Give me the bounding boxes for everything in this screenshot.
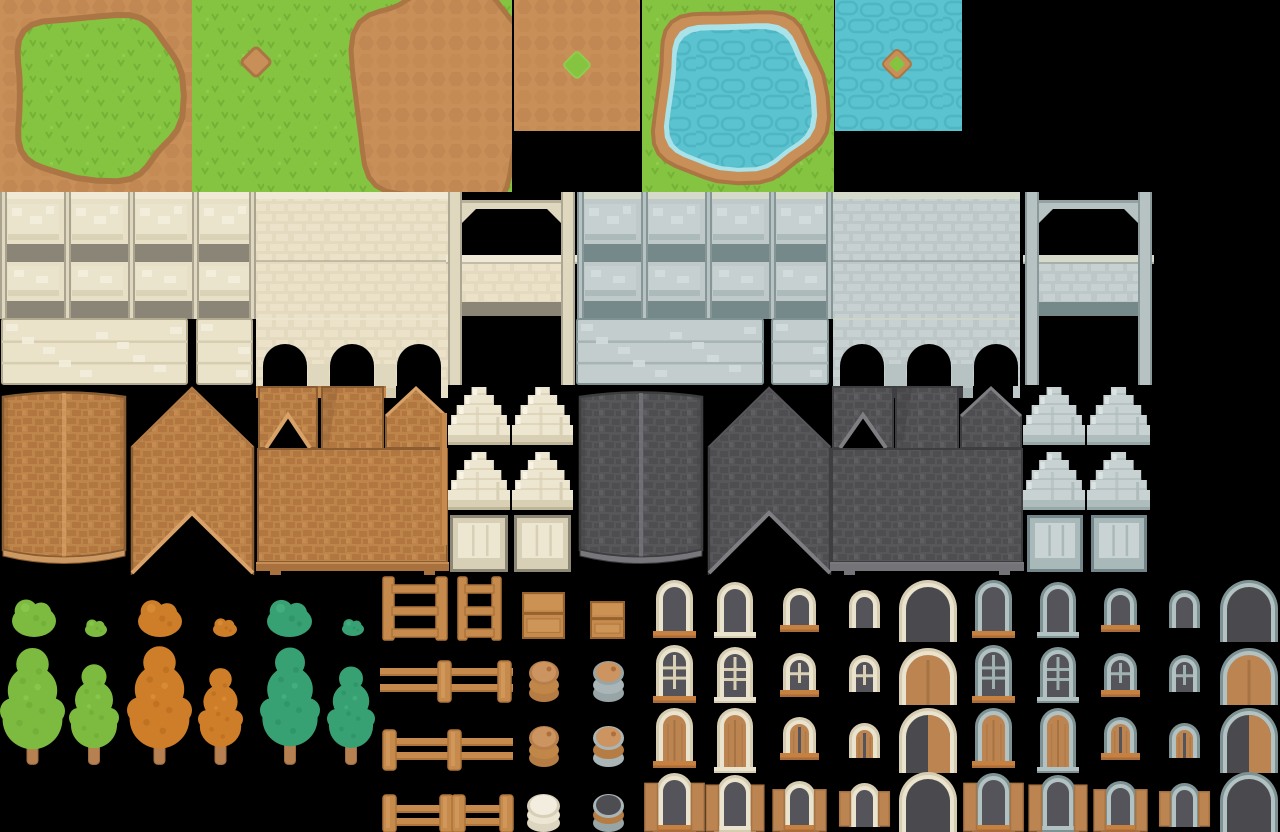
tile-door-window-gray-r3c4 bbox=[1169, 723, 1200, 758]
tile-grass-island bbox=[0, 0, 192, 192]
tile-shop-shutter-gray-1 bbox=[1027, 515, 1083, 572]
tile-dirt-grass-dot bbox=[514, 0, 640, 131]
tile-barrel-brown-1 bbox=[529, 661, 559, 702]
tile-door-window-gray-r4c1 bbox=[964, 773, 1023, 832]
tile-tree-green-large bbox=[0, 648, 65, 764]
tile-door-window-gray-r1c5 bbox=[1220, 580, 1278, 642]
tile-wood-pole bbox=[440, 413, 447, 545]
tile-roof-strip-dark bbox=[896, 387, 958, 449]
tile-door-window-cream-r4c4 bbox=[840, 783, 890, 827]
tile-tree-teal-large bbox=[260, 648, 320, 765]
tile-door-window-cream-r1c4 bbox=[849, 590, 880, 628]
tile-door-window-gray-r2c2 bbox=[1037, 647, 1079, 703]
tile-shop-shutter-cream-1 bbox=[450, 515, 508, 572]
tileset-canvas bbox=[0, 0, 1280, 832]
tile-roof-ridge-dark bbox=[580, 393, 702, 564]
tileset-spritesheet bbox=[0, 0, 1280, 832]
tile-door-window-gray-r2c5 bbox=[1220, 648, 1278, 705]
tile-shop-shutter-gray-2 bbox=[1091, 515, 1147, 572]
tile-grass-dirt-dot bbox=[192, 0, 320, 192]
tile-wall-plain-gray bbox=[833, 192, 1020, 318]
tile-water-island bbox=[835, 0, 962, 131]
tile-wall-gate-cream bbox=[446, 192, 577, 385]
tile-door-window-gray-r3c5 bbox=[1220, 708, 1278, 773]
tile-wall-base-cream-wide bbox=[2, 319, 187, 384]
tile-door-window-cream-r2c5 bbox=[899, 648, 957, 705]
tile-door-window-cream-r3c4 bbox=[849, 723, 880, 758]
tile-door-window-gray-r1c4 bbox=[1169, 590, 1200, 628]
tile-roof-face-brown bbox=[256, 449, 449, 575]
tile-door-window-gray-r4c3 bbox=[1094, 781, 1147, 832]
tile-wall-base-cream-narrow bbox=[197, 319, 252, 384]
tile-door-window-cream-r1c5 bbox=[899, 580, 957, 642]
tile-barrel-gray-2 bbox=[593, 726, 624, 767]
tile-wall-panels-cream bbox=[0, 192, 256, 319]
tile-door-window-gray-r3c3 bbox=[1101, 717, 1140, 760]
tile-barrel-brown-2 bbox=[529, 726, 559, 767]
tile-door-window-cream-r4c5 bbox=[899, 772, 957, 832]
tile-bush-green-small bbox=[85, 620, 107, 638]
tile-wall-plain-cream bbox=[256, 192, 448, 318]
tile-door-window-cream-r1c1 bbox=[653, 580, 696, 638]
tile-ladder-wide bbox=[383, 577, 447, 640]
tile-door-window-gray-r1c3 bbox=[1101, 588, 1140, 632]
tile-bush-green-large bbox=[12, 600, 56, 637]
tile-tree-green-small bbox=[69, 664, 119, 764]
tile-awning-gray-2 bbox=[1087, 387, 1150, 445]
tile-pond bbox=[642, 0, 834, 192]
tile-door-window-gray-r3c2 bbox=[1037, 708, 1079, 773]
tile-bush-orange-large bbox=[138, 600, 182, 637]
tile-door-window-cream-r2c3 bbox=[780, 653, 819, 697]
tile-fence-double-post bbox=[383, 795, 513, 832]
tile-roof-valley-brown bbox=[259, 387, 317, 448]
tile-roof-strip-brown bbox=[322, 387, 383, 449]
tile-door-window-gray-r2c3 bbox=[1101, 653, 1140, 697]
tile-fence-posts-left bbox=[383, 730, 513, 770]
tile-awning-cream-3 bbox=[448, 452, 510, 510]
tile-wall-base-gray-narrow bbox=[772, 319, 828, 384]
tile-awning-cream-4 bbox=[512, 452, 573, 510]
tile-roof-chevron-brown bbox=[132, 388, 253, 573]
tile-bush-teal-large bbox=[267, 600, 312, 637]
tile-awning-gray-3 bbox=[1023, 452, 1085, 510]
tile-tree-orange-large bbox=[127, 646, 192, 764]
tile-door-window-cream-r3c5 bbox=[899, 708, 957, 773]
tile-awning-cream-2 bbox=[512, 387, 573, 445]
tile-roof-face-dark bbox=[830, 449, 1024, 575]
tile-roof-chevron-dark bbox=[709, 388, 830, 573]
tile-door-window-gray-r4c5 bbox=[1220, 772, 1278, 832]
tile-door-window-gray-r4c2 bbox=[1029, 775, 1087, 832]
tile-door-window-cream-r3c1 bbox=[653, 708, 696, 768]
tile-ladder-narrow bbox=[458, 577, 501, 640]
tile-roof-ridge-brown bbox=[3, 393, 125, 564]
tile-door-window-cream-r1c2 bbox=[714, 582, 756, 638]
tile-barrel-gray-hoop bbox=[593, 661, 624, 702]
tile-door-window-gray-r1c1 bbox=[972, 580, 1015, 638]
tile-door-window-cream-r3c3 bbox=[780, 717, 819, 760]
tile-awning-cream-1 bbox=[448, 387, 510, 445]
tile-door-window-cream-r2c2 bbox=[714, 647, 756, 703]
tile-door-window-cream-r1c3 bbox=[780, 588, 819, 632]
tile-roof-valley-dark bbox=[833, 387, 893, 448]
tile-door-window-gray-r4c4 bbox=[1160, 783, 1210, 827]
tile-tree-orange-small bbox=[198, 668, 243, 764]
tile-door-window-gray-r2c4 bbox=[1169, 655, 1200, 692]
tile-shop-shutter-cream-2 bbox=[514, 515, 571, 572]
tile-fence-posts-right bbox=[380, 661, 513, 702]
tile-awning-gray-1 bbox=[1023, 387, 1085, 445]
tile-door-window-gray-r3c1 bbox=[972, 708, 1015, 768]
tile-door-window-cream-r4c3 bbox=[773, 781, 826, 832]
tile-door-window-cream-r4c2 bbox=[706, 775, 764, 832]
tile-wall-gate-gray bbox=[1023, 192, 1154, 385]
tile-pot-cream bbox=[527, 794, 560, 832]
tile-door-window-cream-r3c2 bbox=[714, 708, 756, 773]
tile-door-window-gray-r1c2 bbox=[1037, 582, 1079, 638]
tile-wall-panels-gray bbox=[577, 192, 833, 319]
tile-door-window-cream-r2c4 bbox=[849, 655, 880, 692]
tile-crate-large bbox=[523, 593, 564, 638]
tile-wall-base-gray-wide bbox=[577, 319, 763, 384]
tile-bush-teal-small bbox=[342, 619, 364, 636]
tile-awning-gray-4 bbox=[1087, 452, 1150, 510]
tile-bush-orange-small bbox=[213, 618, 237, 637]
tile-door-window-cream-r2c1 bbox=[653, 645, 696, 703]
tile-barrel-gray-open bbox=[593, 794, 624, 832]
tile-grass-dirt-blob bbox=[320, 0, 530, 208]
tile-door-window-cream-r4c1 bbox=[645, 773, 704, 832]
tile-tree-teal-small bbox=[327, 666, 375, 764]
tile-crate-small bbox=[591, 602, 624, 638]
tile-door-window-gray-r2c1 bbox=[972, 645, 1015, 703]
